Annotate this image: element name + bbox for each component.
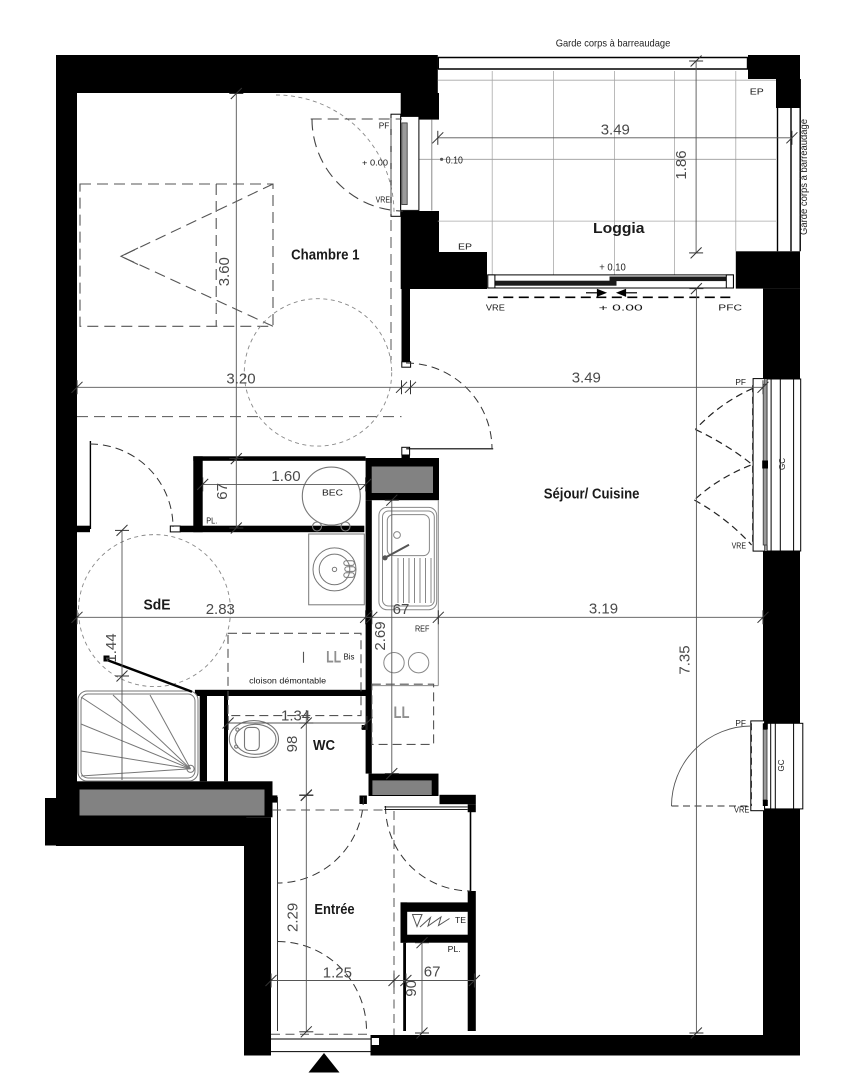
svg-text:Entrée: Entrée bbox=[314, 902, 354, 918]
svg-text:PF: PF bbox=[379, 120, 390, 130]
svg-text:+ 0.00: + 0.00 bbox=[599, 303, 643, 313]
svg-text:1.34: 1.34 bbox=[281, 708, 310, 725]
svg-text:TE: TE bbox=[455, 915, 466, 925]
svg-text:Chambre 1: Chambre 1 bbox=[291, 248, 359, 264]
svg-text:cloison démontable: cloison démontable bbox=[249, 676, 326, 686]
svg-text:+ 0.10: + 0.10 bbox=[599, 261, 626, 273]
svg-text:3.49: 3.49 bbox=[572, 370, 601, 387]
svg-text:1.44: 1.44 bbox=[103, 633, 120, 662]
svg-text:7.35: 7.35 bbox=[677, 645, 694, 674]
svg-text:3.19: 3.19 bbox=[589, 601, 618, 618]
svg-text:Garde corps à barreaudage: Garde corps à barreaudage bbox=[556, 37, 671, 49]
svg-text:2.83: 2.83 bbox=[206, 601, 235, 618]
svg-text:VRE: VRE bbox=[732, 540, 747, 550]
svg-text:VRE: VRE bbox=[734, 805, 750, 815]
svg-text:Loggia: Loggia bbox=[593, 221, 646, 237]
svg-text:GC: GC bbox=[776, 760, 786, 772]
svg-text:Séjour/ Cuisine: Séjour/ Cuisine bbox=[544, 487, 640, 503]
svg-text:Bis: Bis bbox=[344, 652, 355, 662]
svg-text:BEC: BEC bbox=[322, 488, 343, 498]
svg-text:VRE: VRE bbox=[376, 194, 391, 204]
svg-text:EP: EP bbox=[458, 242, 472, 252]
svg-text:1.25: 1.25 bbox=[323, 965, 352, 982]
svg-text:3.20: 3.20 bbox=[226, 370, 255, 387]
svg-text:SdE: SdE bbox=[144, 598, 171, 614]
svg-text:REF: REF bbox=[415, 624, 430, 634]
svg-text:PL.: PL. bbox=[448, 944, 461, 954]
svg-text:+ 0.00: + 0.00 bbox=[362, 157, 388, 167]
svg-text:90: 90 bbox=[403, 980, 420, 997]
svg-text:GC: GC bbox=[777, 458, 787, 470]
svg-text:WC: WC bbox=[313, 738, 335, 754]
svg-text:VRE: VRE bbox=[486, 303, 505, 313]
svg-text:PF: PF bbox=[735, 377, 746, 387]
svg-text:PF: PF bbox=[735, 718, 746, 728]
svg-text:1.60: 1.60 bbox=[271, 468, 300, 485]
svg-text:3.49: 3.49 bbox=[601, 122, 630, 139]
svg-text:2.69: 2.69 bbox=[372, 621, 389, 650]
svg-text:0.10: 0.10 bbox=[446, 154, 463, 166]
svg-text:3.60: 3.60 bbox=[216, 257, 233, 286]
svg-text:PL.: PL. bbox=[206, 516, 217, 526]
svg-text:1.86: 1.86 bbox=[673, 150, 690, 179]
svg-text:2.29: 2.29 bbox=[285, 903, 302, 932]
svg-text:67: 67 bbox=[424, 964, 441, 981]
svg-text:Garde corps à barreaudage: Garde corps à barreaudage bbox=[798, 119, 810, 235]
svg-text:67: 67 bbox=[214, 483, 231, 500]
svg-text:LL: LL bbox=[326, 648, 341, 667]
svg-text:EP: EP bbox=[750, 87, 764, 97]
svg-text:67: 67 bbox=[393, 601, 410, 618]
svg-text:98: 98 bbox=[284, 736, 301, 753]
svg-text:PFC: PFC bbox=[718, 303, 742, 313]
svg-text:LL: LL bbox=[394, 703, 410, 722]
